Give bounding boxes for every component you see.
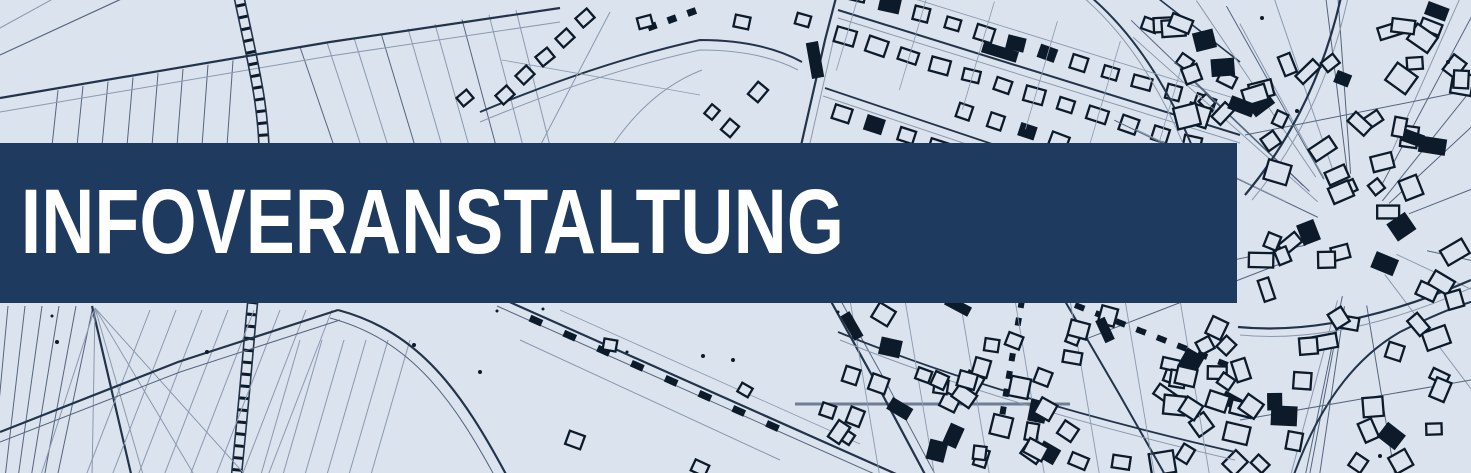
- banner-image: INFOVERANSTALTUNG: [0, 0, 1471, 473]
- title-banner: INFOVERANSTALTUNG: [0, 143, 1237, 303]
- banner-title: INFOVERANSTALTUNG: [0, 170, 844, 276]
